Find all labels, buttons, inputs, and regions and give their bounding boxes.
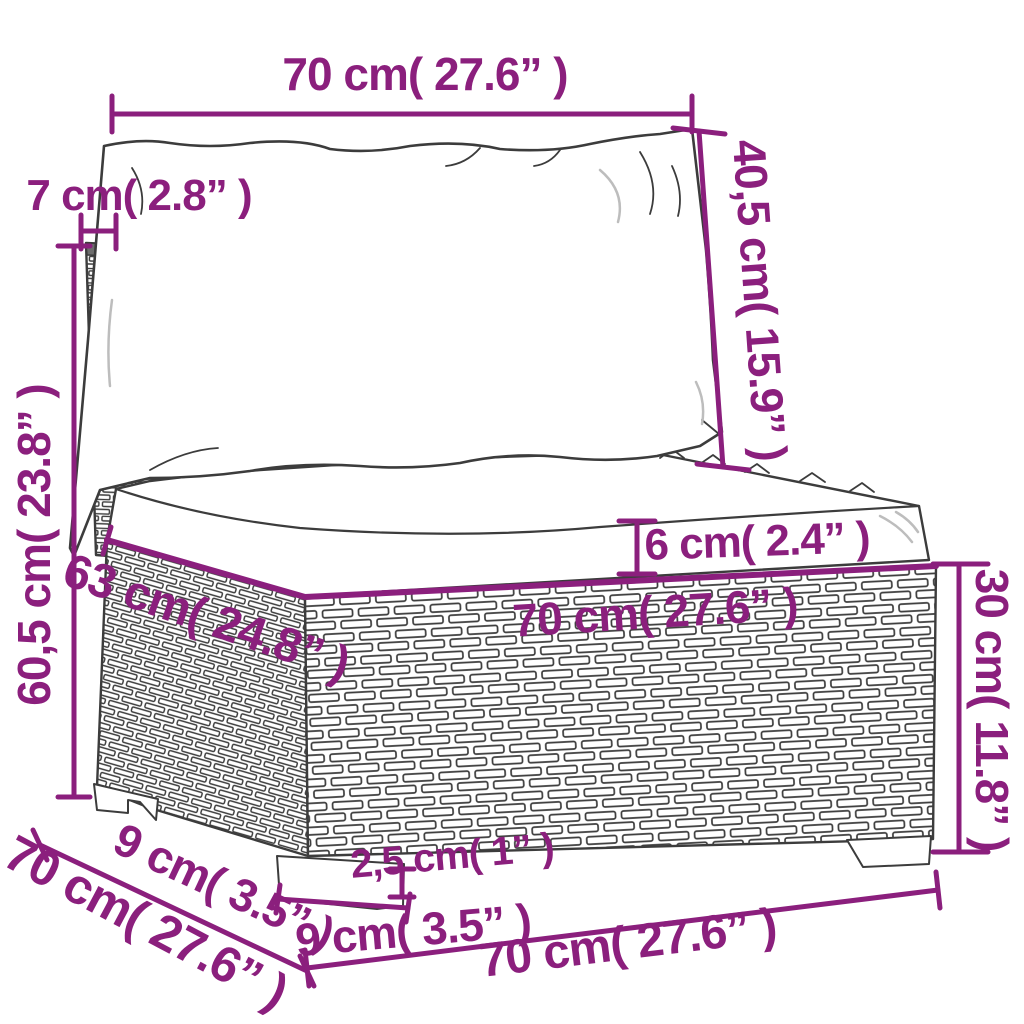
sofa-line-art [0, 0, 1024, 1024]
leg-front-right [847, 836, 931, 867]
dim-line-base-height [933, 564, 988, 852]
dim-line-base-depth [33, 830, 314, 986]
base-front-face [305, 566, 936, 856]
dim-line-cushion-width-top [112, 96, 692, 132]
dimension-diagram: 70 cm( 27.6” ) 7 cm( 2.8” ) 60,5 cm( 23.… [0, 0, 1024, 1024]
